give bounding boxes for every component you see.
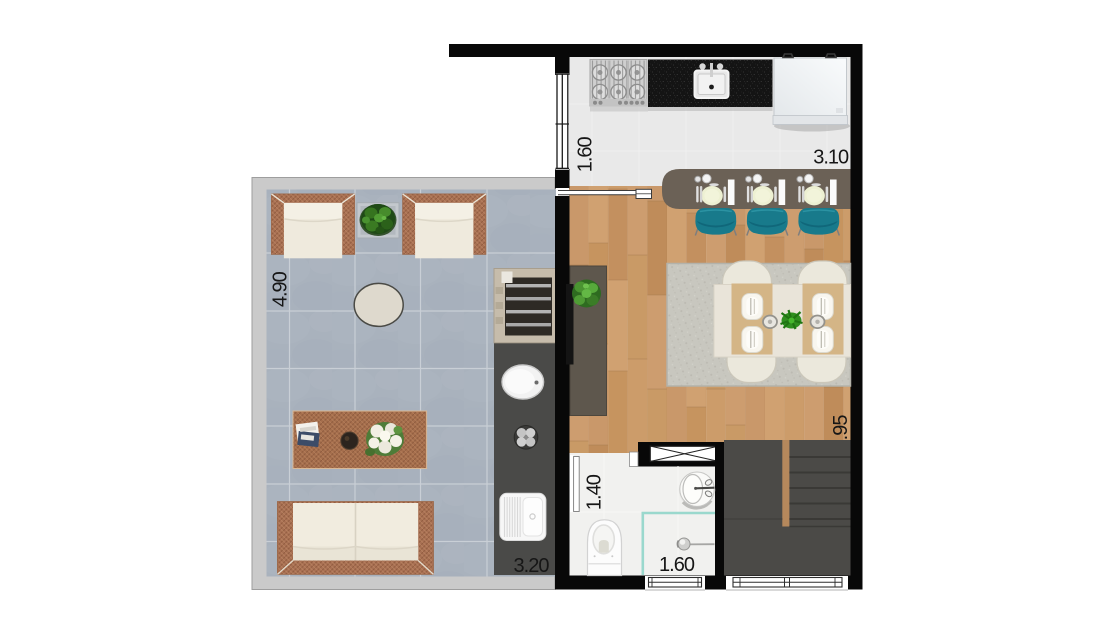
svg-text:4.90: 4.90 xyxy=(270,271,292,307)
svg-text:1.40: 1.40 xyxy=(584,474,606,510)
svg-text:1.60: 1.60 xyxy=(659,554,695,576)
svg-text:3.10: 3.10 xyxy=(813,147,849,169)
svg-text:1.60: 1.60 xyxy=(575,136,597,172)
svg-text:3.20: 3.20 xyxy=(514,555,550,577)
